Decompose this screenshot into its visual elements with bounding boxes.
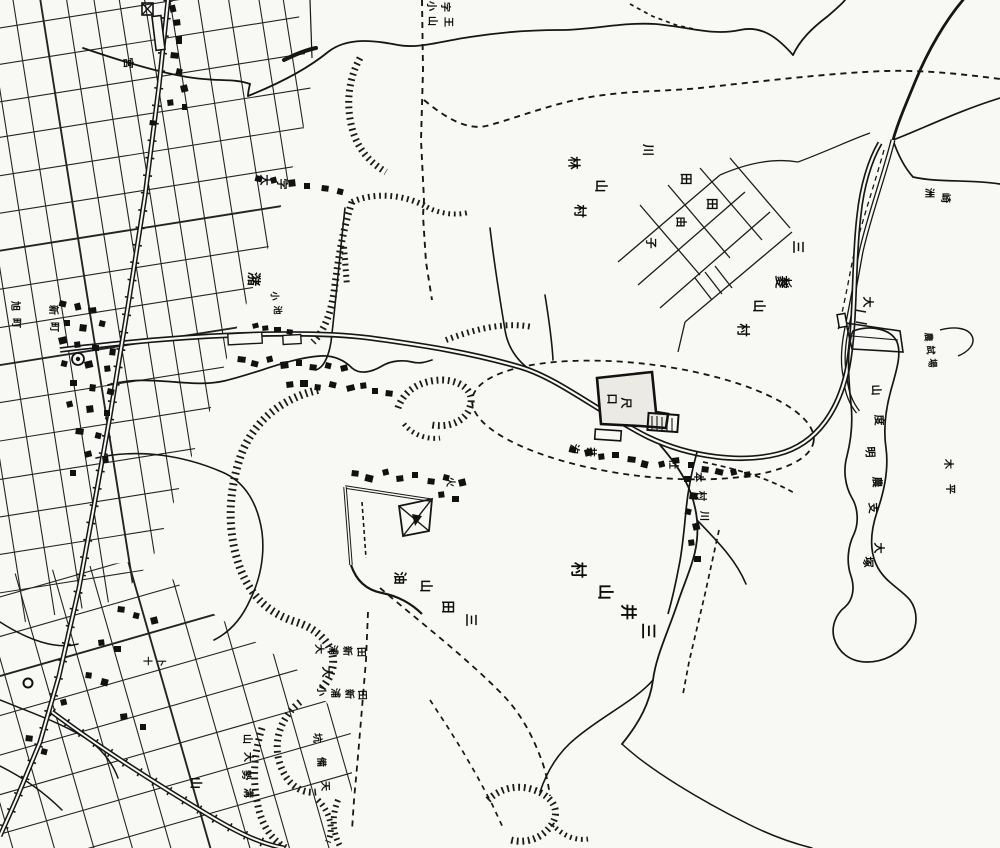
- map-linework: [0, 766, 62, 810]
- building-block: [74, 303, 82, 311]
- building-block: [346, 384, 355, 392]
- building-block: [88, 307, 97, 314]
- hairpin-road: [345, 487, 432, 614]
- map-linework: [540, 680, 653, 792]
- building-block: [64, 320, 70, 326]
- map-linework: [0, 274, 340, 336]
- map-linework: [446, 325, 532, 340]
- building-block: [99, 320, 106, 327]
- map-linework: [0, 162, 322, 224]
- building-block: [61, 360, 68, 367]
- map-linework: [595, 429, 622, 441]
- point-symbols: [24, 3, 868, 688]
- town-double-circle-core: [76, 357, 80, 361]
- map-linework: [622, 744, 812, 848]
- building-block: [60, 699, 67, 706]
- building-block: [58, 336, 67, 345]
- map-linework: [352, 196, 427, 207]
- map-linework: [52, 712, 284, 848]
- paddy-diamond-grid: [618, 133, 870, 352]
- map-linework: [313, 202, 352, 342]
- building-block: [412, 472, 418, 478]
- building-block: [84, 360, 93, 369]
- halt-circle: [24, 679, 33, 688]
- building-block: [274, 327, 281, 332]
- building-block: [584, 448, 593, 457]
- map-linework: [424, 71, 1000, 127]
- map-linework: [362, 502, 366, 558]
- building-block: [133, 612, 140, 619]
- building-block: [286, 381, 294, 388]
- building-block: [296, 360, 302, 366]
- building-block: [730, 469, 737, 476]
- building-block: [382, 469, 389, 476]
- building-block: [170, 52, 179, 59]
- building-block: [25, 735, 33, 742]
- building-block: [255, 175, 263, 183]
- building-block: [340, 364, 348, 372]
- building-block: [180, 84, 188, 92]
- map-linework: [231, 390, 334, 688]
- building-block: [98, 639, 105, 646]
- building-block: [569, 446, 577, 454]
- map-linework: [697, 520, 746, 584]
- bridge-ticks: [855, 310, 867, 324]
- building-block: [59, 300, 67, 308]
- map-linework: [0, 570, 387, 632]
- map-linework: [852, 336, 898, 340]
- map-linework: [638, 192, 745, 285]
- building-block: [701, 466, 709, 473]
- building-block: [385, 390, 393, 397]
- railway-branch-line: [52, 712, 284, 848]
- map-linework: [284, 48, 316, 60]
- building-block: [120, 713, 128, 720]
- map-linework: [893, 98, 1000, 140]
- map-linework: [153, 511, 263, 848]
- roadside-block: [228, 332, 263, 345]
- building-block: [364, 474, 373, 483]
- building-block: [117, 606, 125, 613]
- building-block: [95, 432, 102, 439]
- building-block: [149, 120, 156, 126]
- building-block: [237, 356, 246, 363]
- map-linework: [156, 0, 287, 740]
- map-linework: [0, 126, 316, 188]
- building-block: [715, 468, 724, 476]
- map-linework: [622, 445, 697, 744]
- building-block: [300, 380, 308, 387]
- map-linework: [52, 712, 284, 848]
- map-linework: [488, 787, 556, 841]
- map-linework: [190, 501, 300, 848]
- map-linework: [705, 272, 722, 294]
- building-block: [325, 362, 332, 369]
- map-linework: [0, 0, 107, 768]
- slope-hachures: [231, 58, 588, 848]
- map-linework: [345, 487, 430, 500]
- building-block: [266, 356, 273, 363]
- building-block: [438, 491, 445, 498]
- map-linework: [52, 712, 284, 848]
- map-linework: [0, 508, 311, 629]
- building-block: [104, 410, 110, 416]
- building-block: [104, 365, 111, 372]
- station-building-rectangle: [152, 16, 165, 51]
- map-linework: [490, 228, 533, 372]
- map-linework: [618, 175, 720, 262]
- map-linework: [640, 205, 700, 275]
- building-block: [251, 360, 259, 368]
- map-linework: [545, 295, 553, 360]
- building-block: [372, 388, 378, 394]
- building-block: [612, 452, 619, 458]
- map-linework: [263, 480, 373, 848]
- building-block: [672, 457, 680, 464]
- map-linework: [843, 140, 893, 412]
- building-block: [41, 748, 48, 755]
- building-block: [89, 384, 96, 392]
- building-block: [167, 99, 174, 106]
- building-block: [114, 646, 121, 652]
- map-linework: [0, 574, 44, 848]
- map-linework: [678, 322, 685, 352]
- building-block: [280, 361, 289, 369]
- building-block: [321, 185, 329, 192]
- map-linework: [695, 278, 712, 300]
- building-block: [66, 401, 73, 408]
- building-block: [692, 522, 700, 530]
- building-block: [640, 460, 648, 468]
- map-linework: [243, 0, 374, 726]
- map-linework: [427, 207, 470, 214]
- building-block: [658, 461, 665, 468]
- building-block: [176, 36, 182, 44]
- map-linework: [82, 0, 213, 751]
- map-linework: [703, 462, 796, 494]
- building-block: [70, 380, 77, 386]
- building-block: [288, 179, 296, 187]
- map-linework: [380, 588, 550, 796]
- building-block: [74, 341, 81, 348]
- building-block: [744, 471, 751, 478]
- map-linework: [349, 58, 386, 172]
- building-block: [85, 672, 92, 679]
- building-block: [689, 492, 698, 500]
- map-linework: [685, 232, 792, 322]
- building-block: [688, 539, 695, 546]
- map-linework: [660, 212, 770, 308]
- building-block: [84, 450, 92, 458]
- building-block: [86, 405, 94, 413]
- bridge-rectangle: [837, 313, 847, 327]
- map-linework: [352, 612, 368, 830]
- map-linework: [843, 140, 893, 412]
- building-block: [75, 428, 84, 435]
- building-block: [443, 474, 450, 481]
- building-block: [688, 462, 694, 468]
- map-linework: [668, 185, 730, 258]
- map-linework: [798, 133, 870, 162]
- map-linework: [334, 800, 341, 848]
- building-block: [169, 5, 177, 13]
- lake-and-parcels: [833, 323, 973, 662]
- building-block: [396, 475, 404, 482]
- building-block: [262, 325, 269, 331]
- map-linework: [266, 0, 397, 722]
- map-linework: [344, 247, 347, 286]
- map-linework: [893, 140, 1000, 184]
- map-linework: [255, 728, 286, 848]
- building-block: [337, 188, 344, 195]
- map-linework: [277, 702, 316, 792]
- map-linework: [80, 532, 190, 848]
- building-block: [598, 453, 605, 460]
- map-linework: [715, 266, 732, 288]
- rivers: [0, 0, 1000, 848]
- map-linework: [248, 24, 793, 96]
- map-linework: [700, 168, 762, 240]
- building-block: [150, 616, 158, 624]
- building-block: [109, 348, 116, 356]
- map-linework: [630, 4, 698, 30]
- building-block: [304, 183, 310, 189]
- building-block: [92, 345, 99, 351]
- map-linework: [720, 161, 798, 175]
- building-block: [309, 364, 317, 371]
- map-linework: [404, 424, 440, 438]
- roadside-block: [283, 335, 301, 345]
- map-linework: [0, 236, 334, 298]
- building-block: [329, 381, 337, 389]
- building-block: [427, 478, 435, 485]
- map-linework: [0, 727, 373, 848]
- map-linework: [893, 0, 963, 140]
- map-linework: [318, 800, 331, 842]
- map-linework: [45, 543, 155, 848]
- building-block: [79, 324, 87, 332]
- map-linework: [398, 380, 471, 426]
- building-block: [452, 496, 459, 502]
- building-block: [684, 476, 691, 482]
- building-block: [70, 470, 76, 476]
- map-linework: [940, 328, 973, 356]
- building-block: [694, 556, 701, 562]
- map-linework: [351, 565, 422, 614]
- map-linework: [226, 490, 336, 848]
- building-block: [351, 470, 359, 477]
- building-block: [360, 382, 367, 389]
- map-linework: [552, 824, 588, 839]
- building-block: [627, 456, 636, 463]
- map-linework: [0, 544, 321, 665]
- map-linework: [0, 495, 375, 557]
- building-block: [286, 329, 293, 335]
- map-sheet: Scanned historical Japanese topographic …: [0, 0, 1000, 848]
- map-linework: [117, 522, 227, 848]
- building-block: [140, 724, 146, 730]
- map-linework: [345, 487, 351, 565]
- map-linework: [683, 530, 719, 694]
- map-linework: [0, 458, 369, 520]
- building-block: [458, 478, 466, 486]
- building-block: [102, 455, 109, 463]
- map-image: [0, 0, 1000, 848]
- building-block: [314, 384, 321, 391]
- map-linework: [430, 700, 504, 830]
- building-block: [173, 19, 181, 26]
- building-block: [270, 177, 277, 184]
- map-linework: [793, 0, 845, 55]
- map-linework: [730, 158, 790, 228]
- building-block: [182, 104, 187, 110]
- map-linework: [0, 0, 50, 777]
- building-block: [252, 323, 259, 329]
- boundary-along-river: [838, 150, 884, 330]
- map-linework: [316, 208, 345, 370]
